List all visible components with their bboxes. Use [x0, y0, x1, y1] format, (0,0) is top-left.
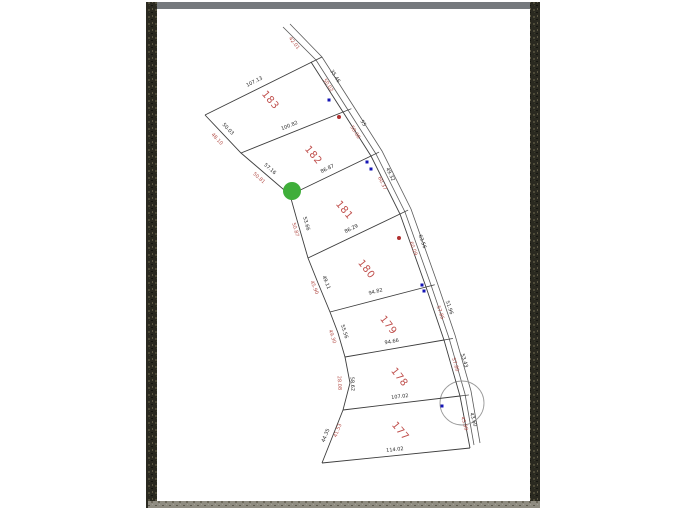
blue-point-marker — [366, 161, 369, 164]
photo-border-top — [148, 2, 540, 9]
red-point-marker — [337, 115, 341, 119]
blue-point-marker — [441, 405, 444, 408]
red-point-marker — [397, 236, 401, 240]
blue-point-marker — [423, 290, 426, 293]
dimension-label: 58.62 — [349, 377, 356, 392]
scanned-plat-page: 107.13100.8286.8786.2994.8294.66107.0211… — [0, 0, 680, 510]
blue-point-marker — [370, 168, 373, 171]
blue-point-marker — [328, 99, 331, 102]
photo-border-bottom — [148, 501, 540, 508]
plat-map-svg: 107.13100.8286.8786.2994.8294.66107.0211… — [0, 0, 680, 510]
green-point-marker — [283, 182, 301, 200]
photo-border-left — [146, 2, 157, 508]
photo-border-right — [530, 2, 540, 508]
blue-point-marker — [421, 284, 424, 287]
dimension-label: 28.08 — [336, 376, 343, 391]
